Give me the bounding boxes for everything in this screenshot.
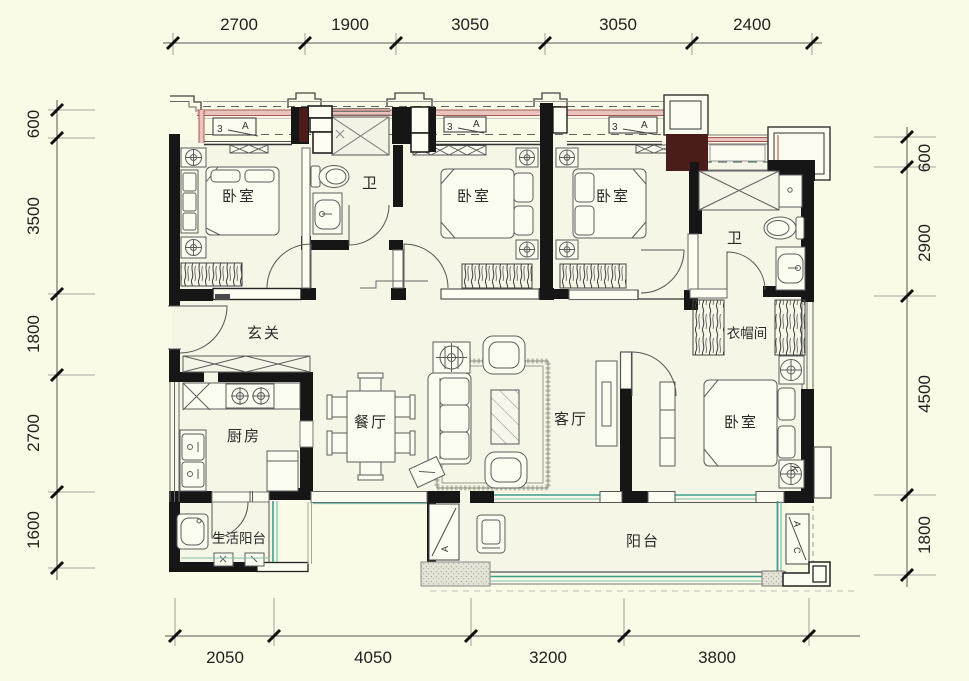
svg-text:600: 600 xyxy=(24,110,43,138)
svg-text:4500: 4500 xyxy=(915,375,934,413)
svg-text:A: A xyxy=(473,119,480,130)
svg-text:卫: 卫 xyxy=(727,230,742,247)
svg-text:3200: 3200 xyxy=(529,648,567,667)
svg-text:3050: 3050 xyxy=(451,15,489,34)
svg-text:A: A xyxy=(792,521,802,527)
svg-text:A: A xyxy=(440,546,450,552)
svg-text:3: 3 xyxy=(447,122,453,133)
svg-text:厨房: 厨房 xyxy=(227,428,261,445)
svg-text:2700: 2700 xyxy=(220,15,258,34)
svg-text:2700: 2700 xyxy=(24,414,43,452)
svg-text:卧室: 卧室 xyxy=(724,414,758,431)
svg-text:600: 600 xyxy=(915,144,934,172)
svg-text:2050: 2050 xyxy=(206,648,244,667)
svg-text:1800: 1800 xyxy=(915,516,934,554)
svg-text:客厅: 客厅 xyxy=(554,411,588,428)
svg-text:3: 3 xyxy=(217,124,223,135)
svg-text:C: C xyxy=(792,547,802,554)
svg-text:衣帽间: 衣帽间 xyxy=(727,326,768,341)
svg-text:阳台: 阳台 xyxy=(626,533,660,550)
svg-text:卧室: 卧室 xyxy=(457,188,491,205)
svg-text:1600: 1600 xyxy=(24,511,43,549)
svg-text:卧室: 卧室 xyxy=(222,188,256,205)
svg-text:3800: 3800 xyxy=(698,648,736,667)
svg-text:1800: 1800 xyxy=(24,315,43,353)
svg-text:A: A xyxy=(242,121,249,132)
svg-text:2400: 2400 xyxy=(733,15,771,34)
svg-text:1900: 1900 xyxy=(331,15,369,34)
svg-text:餐厅: 餐厅 xyxy=(354,414,388,431)
svg-text:玄关: 玄关 xyxy=(247,325,281,342)
svg-text:4050: 4050 xyxy=(354,648,392,667)
svg-text:生活阳台: 生活阳台 xyxy=(212,531,266,546)
svg-text:2900: 2900 xyxy=(915,224,934,262)
svg-text:3: 3 xyxy=(612,122,618,133)
svg-text:3050: 3050 xyxy=(599,15,637,34)
svg-text:卧室: 卧室 xyxy=(596,188,630,205)
svg-text:A: A xyxy=(641,120,648,131)
svg-text:3500: 3500 xyxy=(24,197,43,235)
svg-text:卫: 卫 xyxy=(362,175,377,192)
